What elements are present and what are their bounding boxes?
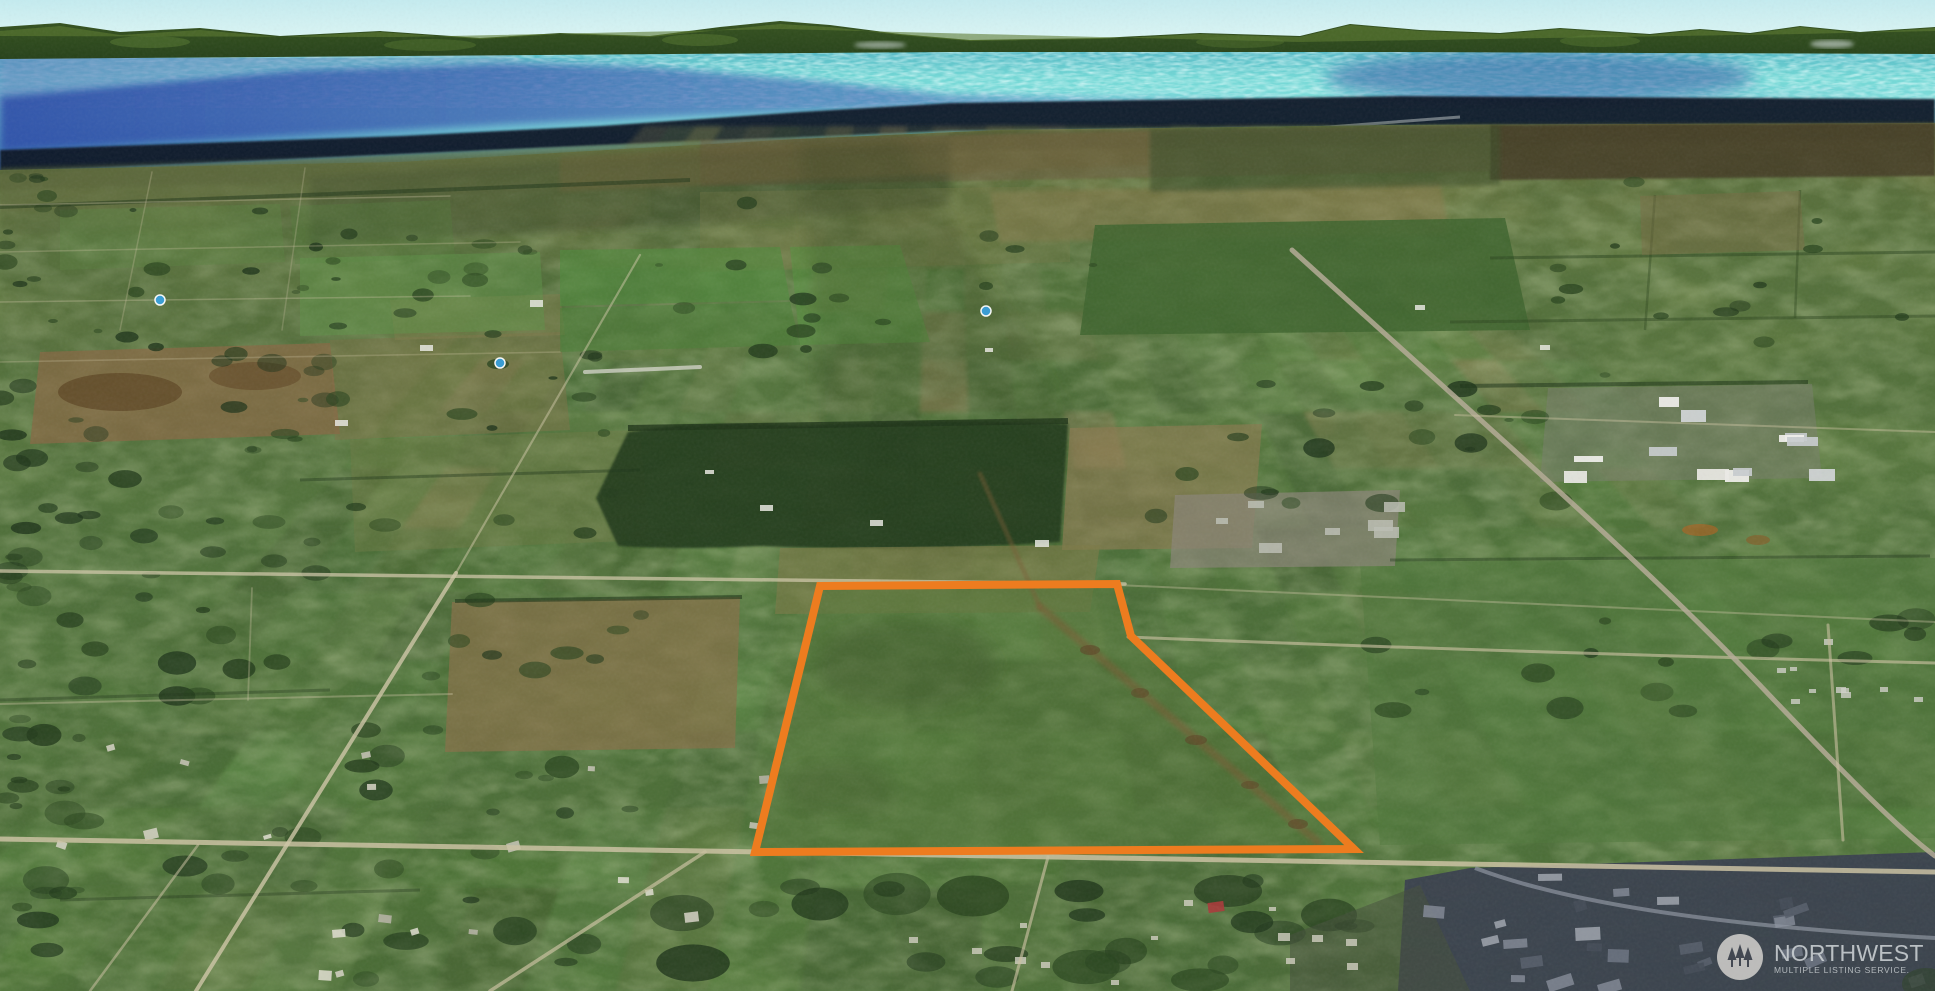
svg-text:NORTHWEST: NORTHWEST [1774, 940, 1924, 966]
svg-text:MULTIPLE LISTING SERVICE.: MULTIPLE LISTING SERVICE. [1774, 965, 1910, 975]
